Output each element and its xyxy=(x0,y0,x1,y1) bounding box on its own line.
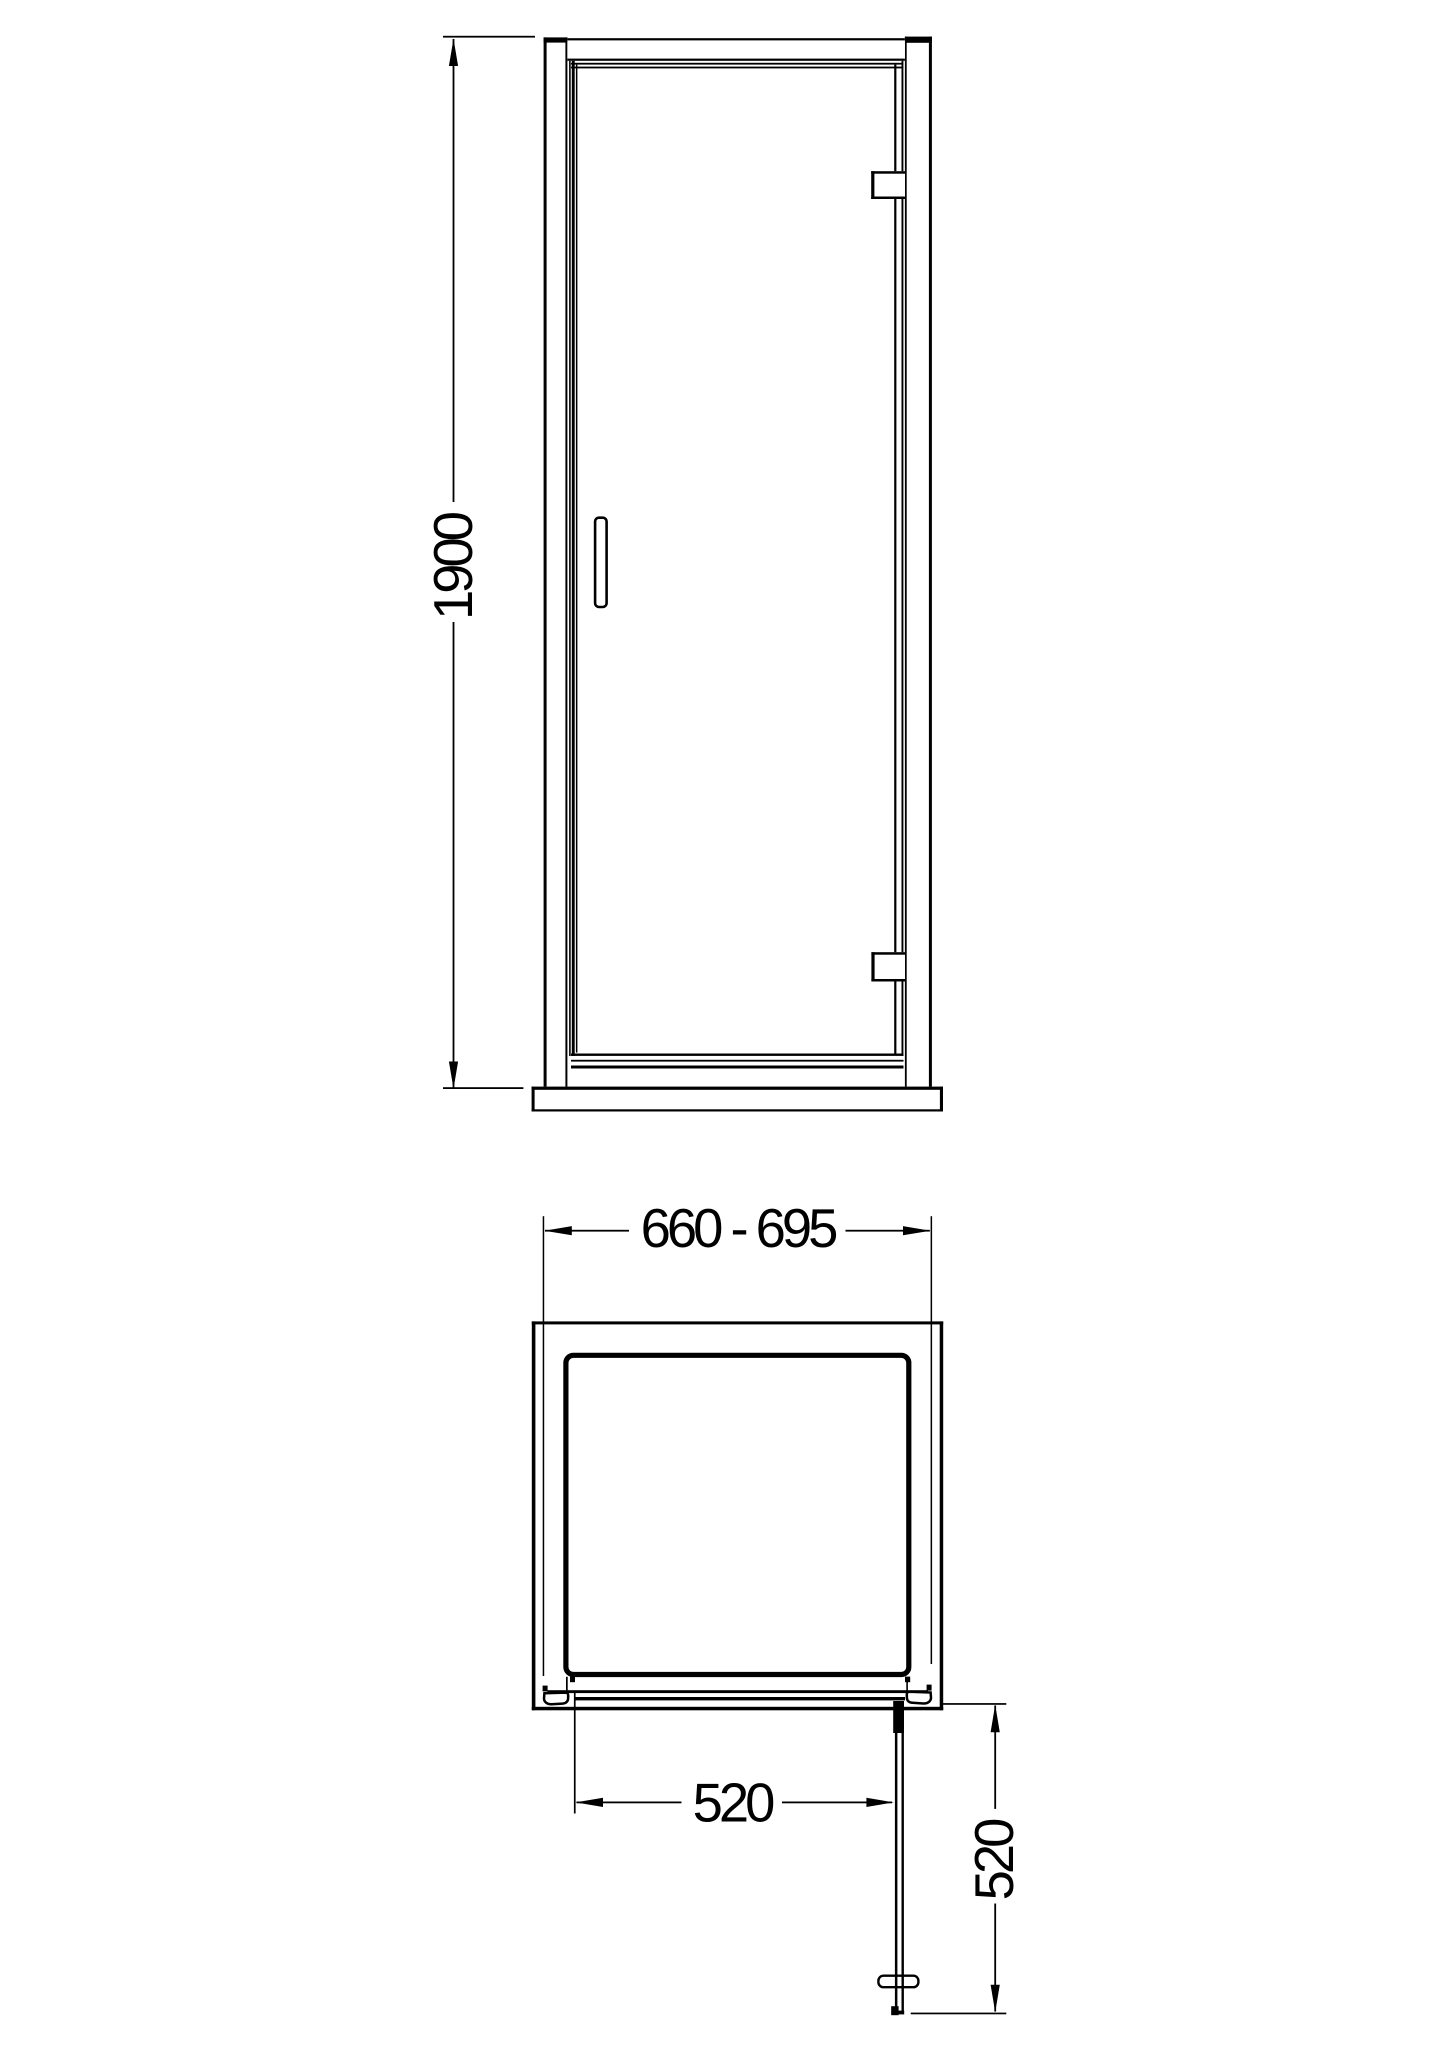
svg-text:520: 520 xyxy=(693,1773,774,1834)
svg-text:660 - 695: 660 - 695 xyxy=(641,1198,837,1259)
svg-text:520: 520 xyxy=(964,1819,1025,1900)
svg-text:1900: 1900 xyxy=(423,512,484,620)
